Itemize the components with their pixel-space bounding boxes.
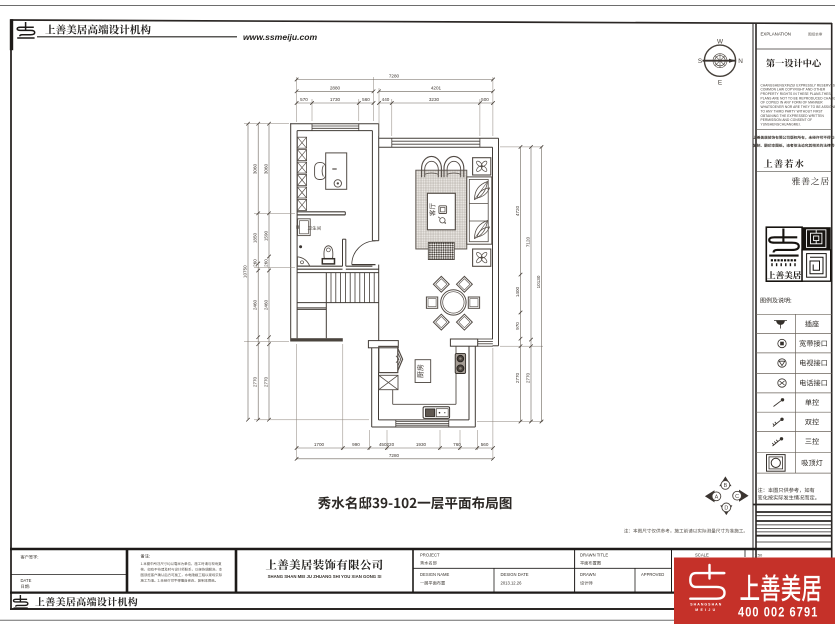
svg-text:560: 560 bbox=[362, 97, 370, 102]
svg-text:2770: 2770 bbox=[263, 376, 268, 387]
svg-text:4720: 4720 bbox=[515, 205, 520, 216]
svg-text:B: B bbox=[724, 483, 728, 489]
svg-text:1850: 1850 bbox=[253, 232, 258, 243]
svg-text:PROJECT: PROJECT bbox=[420, 553, 440, 558]
svg-text:2013.12.26: 2013.12.26 bbox=[501, 581, 523, 586]
svg-text:N: N bbox=[738, 58, 743, 65]
svg-text:APPROVED: APPROVED bbox=[641, 572, 664, 577]
svg-text:2460: 2460 bbox=[263, 299, 268, 310]
svg-text:EXPLANATION: EXPLANATION bbox=[761, 32, 791, 37]
svg-text:1400: 1400 bbox=[515, 286, 520, 297]
svg-text:OF COPIED IN ANY FORM OF MANNE: OF COPIED IN ANY FORM OF MANNER bbox=[761, 101, 824, 105]
svg-text:3230: 3230 bbox=[429, 97, 440, 102]
svg-text:W: W bbox=[717, 39, 724, 46]
svg-text:500: 500 bbox=[481, 97, 489, 102]
svg-text:2460: 2460 bbox=[253, 299, 258, 310]
svg-text:DATE: DATE bbox=[21, 578, 32, 583]
svg-text:A: A bbox=[715, 494, 719, 500]
svg-text:SCALE: SCALE bbox=[695, 553, 709, 558]
svg-text:10750: 10750 bbox=[242, 265, 247, 278]
svg-text:440: 440 bbox=[382, 97, 390, 102]
svg-text:CHANGSHENGXINZUI EXPRESSLY RES: CHANGSHENGXINZUI EXPRESSLY RESERVES ITS bbox=[761, 83, 835, 87]
svg-text:7280: 7280 bbox=[389, 74, 400, 79]
svg-text:PROPERTY RIGHTS IN THESE PLANS: PROPERTY RIGHTS IN THESE PLANS.THESE bbox=[761, 92, 833, 96]
svg-text:3060: 3060 bbox=[263, 163, 268, 174]
svg-text:400 002 6791: 400 002 6791 bbox=[738, 604, 818, 619]
svg-text:2770: 2770 bbox=[525, 372, 530, 383]
svg-text:www.ssmeiju.com: www.ssmeiju.com bbox=[243, 32, 318, 42]
svg-text:DESIGN NAME: DESIGN NAME bbox=[420, 572, 450, 577]
svg-text:TO ANY THIRD PARTY WITHOUT FIR: TO ANY THIRD PARTY WITHOUT FIRST bbox=[761, 109, 823, 113]
svg-text:2880: 2880 bbox=[330, 85, 341, 90]
svg-text:570: 570 bbox=[300, 97, 308, 102]
svg-text:970: 970 bbox=[515, 322, 520, 330]
svg-text:D: D bbox=[724, 506, 728, 512]
svg-text:1730: 1730 bbox=[330, 97, 341, 102]
svg-text:7120: 7120 bbox=[525, 236, 530, 247]
svg-text:450220: 450220 bbox=[379, 442, 395, 447]
svg-text:S: S bbox=[698, 58, 702, 65]
svg-text:E: E bbox=[718, 80, 722, 87]
svg-text:10130: 10130 bbox=[536, 275, 541, 288]
svg-text:2770: 2770 bbox=[515, 372, 520, 383]
svg-text:DRAWN: DRAWN bbox=[580, 572, 596, 577]
svg-text:1930: 1930 bbox=[416, 442, 427, 447]
svg-text:1:50: 1:50 bbox=[755, 553, 764, 558]
svg-text:1590: 1590 bbox=[263, 230, 268, 241]
svg-text:760: 760 bbox=[453, 442, 461, 447]
svg-text:C: C bbox=[735, 494, 739, 500]
svg-text:990: 990 bbox=[352, 442, 360, 447]
svg-text:3060: 3060 bbox=[253, 163, 258, 174]
svg-text:560: 560 bbox=[481, 442, 489, 447]
svg-text:PERMISSION AND CONSENT OF: PERMISSION AND CONSENT OF bbox=[761, 118, 813, 122]
svg-text:1700: 1700 bbox=[314, 442, 325, 447]
svg-text:SHANGSHAN: SHANGSHAN bbox=[690, 602, 722, 606]
svg-text:7280: 7280 bbox=[389, 453, 400, 458]
svg-text:YUNSHENGCHUANGMEI.: YUNSHENGCHUANGMEI. bbox=[761, 123, 801, 127]
svg-text:DRAWN TITLE: DRAWN TITLE bbox=[580, 553, 608, 558]
svg-text:SHANG SHAN MEI JU ZHUANG SHI Y: SHANG SHAN MEI JU ZHUANG SHI YOU XIAN GO… bbox=[268, 574, 382, 579]
svg-text:4201: 4201 bbox=[431, 85, 442, 90]
svg-text:2770: 2770 bbox=[253, 376, 258, 387]
svg-text:260: 260 bbox=[253, 259, 258, 267]
svg-text:DESIGN DATE: DESIGN DATE bbox=[501, 572, 529, 577]
svg-text:260: 260 bbox=[263, 259, 268, 267]
svg-text:MEIJU: MEIJU bbox=[695, 608, 717, 612]
